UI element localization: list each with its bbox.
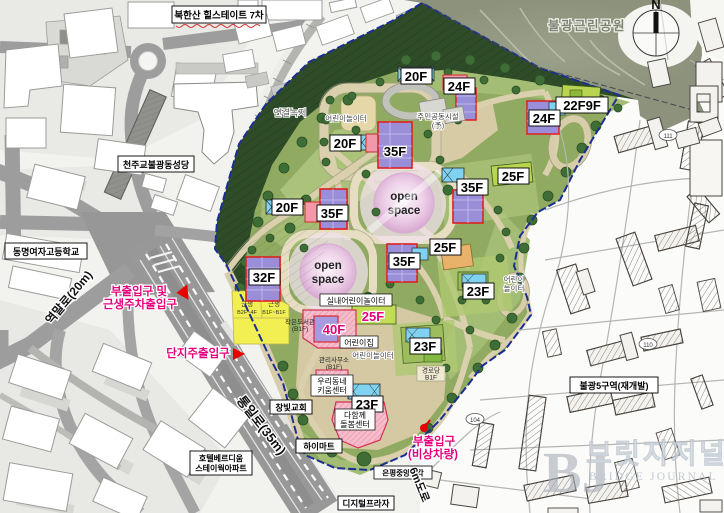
svg-text:35F: 35F: [384, 144, 406, 159]
svg-text:천주교불광동성당: 천주교불광동성당: [123, 159, 190, 170]
svg-text:25F: 25F: [434, 240, 456, 255]
svg-text:22F9F: 22F9F: [563, 98, 601, 113]
svg-text:(비상차량): (비상차량): [408, 447, 458, 461]
svg-text:어린이: 어린이: [504, 274, 525, 284]
svg-text:32F: 32F: [253, 270, 275, 285]
svg-text:실내어린이놀이터: 실내어린이놀이터: [327, 296, 386, 306]
svg-text:110: 110: [643, 343, 653, 349]
svg-text:111: 111: [663, 134, 673, 140]
svg-text:space: space: [312, 274, 345, 286]
svg-text:북한산 힐스테이트 7차: 북한산 힐스테이트 7차: [174, 10, 263, 22]
svg-text:우리동네: 우리동네: [317, 377, 346, 386]
svg-text:25F: 25F: [362, 309, 384, 324]
svg-text:35F: 35F: [393, 254, 415, 269]
svg-text:24F: 24F: [533, 111, 555, 126]
svg-text:브릿지저널: 브릿지저널: [586, 438, 724, 469]
svg-text:35F: 35F: [461, 180, 483, 195]
svg-text:작은도서관: 작은도서관: [285, 317, 315, 326]
svg-text:20F: 20F: [334, 136, 356, 151]
svg-text:주민공동시설: 주민공동시설: [417, 111, 458, 121]
svg-text:다함께: 다함께: [344, 411, 366, 420]
svg-text:돌봄센터: 돌봄센터: [340, 419, 369, 429]
svg-text:BRIDGE JOURNAL: BRIDGE JOURNAL: [589, 471, 718, 483]
svg-text:40F: 40F: [323, 322, 345, 337]
svg-text:25F: 25F: [502, 169, 524, 184]
svg-text:23F: 23F: [414, 339, 436, 354]
svg-text:부출입구 및: 부출입구 및: [111, 284, 168, 298]
svg-text:20F: 20F: [405, 69, 427, 84]
svg-text:동명여자고등학교: 동명여자고등학교: [13, 246, 79, 257]
svg-text:B1F~B1F: B1F~B1F: [262, 310, 286, 316]
svg-text:20F: 20F: [276, 200, 298, 215]
svg-text:경로당: 경로당: [422, 366, 440, 375]
svg-text:스테이웍아파트: 스테이웍아파트: [195, 463, 247, 473]
svg-text:(予): (予): [432, 121, 445, 130]
svg-text:B1F: B1F: [425, 375, 437, 382]
svg-text:부출입구: 부출입구: [413, 434, 456, 448]
svg-text:24F: 24F: [448, 79, 470, 94]
svg-text:104: 104: [470, 418, 481, 424]
svg-text:(B1F): (B1F): [326, 364, 342, 371]
svg-text:디지털프라자: 디지털프라자: [343, 499, 390, 509]
svg-text:어린이집: 어린이집: [344, 338, 373, 348]
svg-text:불광근린공원: 불광근린공원: [548, 18, 626, 33]
svg-text:키움센터: 키움센터: [317, 385, 346, 395]
svg-text:어린이놀이터: 어린이놀이터: [352, 350, 393, 360]
svg-text:35F: 35F: [321, 206, 343, 221]
svg-text:창빛교회: 창빛교회: [275, 403, 306, 413]
svg-text:놀이터: 놀이터: [504, 283, 525, 293]
svg-text:관리사무소: 관리사무소: [319, 355, 349, 364]
svg-text:연결녹지: 연결녹지: [273, 108, 306, 118]
svg-text:N: N: [651, 0, 660, 12]
svg-text:단지주출입구: 단지주출입구: [166, 346, 230, 360]
svg-text:불광5구역(재개발): 불광5구역(재개발): [580, 380, 649, 391]
svg-text:하이마트: 하이마트: [303, 442, 334, 452]
svg-text:근생주차출입구: 근생주차출입구: [103, 297, 177, 311]
svg-text:23F: 23F: [467, 284, 489, 299]
svg-text:호텔베르디움: 호텔베르디움: [199, 453, 244, 463]
svg-text:어린이놀이터: 어린이놀이터: [325, 113, 366, 123]
svg-text:(B1F): (B1F): [292, 326, 308, 333]
